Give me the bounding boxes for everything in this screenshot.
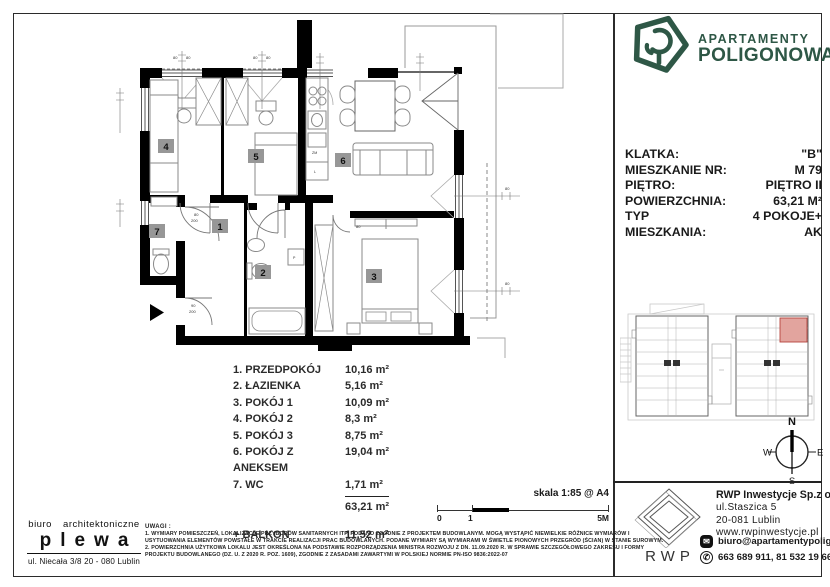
- detail-row: KLATKA:"B": [625, 147, 822, 163]
- scale-caption: skala 1:85 @ A4: [437, 488, 609, 499]
- phone-icon: ✆: [700, 551, 713, 564]
- developer-email: biuro@apartamentypoligonowa.pl: [718, 536, 830, 547]
- compass-rose: N S W E: [760, 414, 824, 486]
- svg-text:L: L: [314, 170, 316, 174]
- svg-text:1: 1: [217, 222, 223, 233]
- room-row: 4. POKÓJ 28,3 m²: [233, 411, 448, 427]
- developer-company: RWP Inwestycje Sp.z o.o.: [716, 489, 824, 502]
- developer-address2: 20-081 Lublin: [716, 515, 824, 528]
- total-area: 63,21 m²: [345, 496, 389, 515]
- room-row: 3. POKÓJ 110,09 m²: [233, 395, 448, 411]
- notes-block: UWAGI : 1. WYMIARY POMIESZCZEŃ, LOKALIZA…: [145, 524, 617, 559]
- svg-text:80: 80: [253, 55, 258, 60]
- developer-info: RWP Inwestycje Sp.z o.o. ul.Staszica 5 2…: [716, 489, 824, 540]
- room-list: 1. PRZEDPOKÓJ10,16 m² 2. ŁAZIENKA5,16 m²…: [233, 362, 448, 543]
- svg-text:P: P: [293, 256, 296, 260]
- brand-line2: POLIGONOWA: [698, 45, 830, 67]
- architect-logo: biuro architektoniczne plewa ul. Niecała…: [27, 519, 141, 566]
- brand-pentagon-icon: [628, 12, 690, 76]
- svg-text:90: 90: [191, 303, 196, 308]
- plan-sheet: 8080 8080 80 200 90 200 80 80 80 ZM L P …: [0, 0, 830, 587]
- scale-tick-5m: 5M: [597, 513, 609, 523]
- room-row: 6. POKÓJ Z ANEKSEM19,04 m²: [233, 444, 448, 477]
- notes-line: 1. WYMIARY POMIESZCZEŃ, LOKALIZACJE PRZY…: [145, 531, 617, 538]
- detail-row: PIĘTRO:PIĘTRO II: [625, 178, 822, 194]
- svg-text:200: 200: [191, 218, 198, 223]
- svg-text:80: 80: [505, 281, 510, 286]
- detail-value: 63,21 M²: [773, 194, 822, 210]
- svg-text:80: 80: [505, 186, 510, 191]
- detail-label: MIESZKANIE NR:: [625, 163, 727, 179]
- email-icon: ✉: [700, 535, 713, 548]
- detail-row: MIESZKANIE NR:M 79: [625, 163, 822, 179]
- building-right: [732, 316, 812, 416]
- svg-text:80: 80: [186, 55, 191, 60]
- detail-row: POWIERZCHNIA:63,21 M²: [625, 194, 822, 210]
- developer-divider: [613, 481, 822, 483]
- developer-phone-row: ✆ 663 689 911, 81 532 19 66: [700, 551, 830, 564]
- svg-text:3: 3: [371, 272, 376, 283]
- detail-label: TYP MIESZKANIA:: [625, 209, 733, 240]
- developer-email-row: ✉ biuro@apartamentypoligonowa.pl: [700, 535, 830, 548]
- scale-tick-0: 0: [437, 513, 442, 523]
- notes-line: PROJEKTU BUDOWLANEGO (DZ. U. Z 2020 R. P…: [145, 552, 617, 559]
- detail-label: KLATKA:: [625, 147, 679, 163]
- svg-text:80: 80: [266, 55, 271, 60]
- compass-n: N: [788, 416, 796, 428]
- svg-text:2: 2: [260, 268, 265, 279]
- room-badge-3: 3: [366, 269, 382, 283]
- svg-text:80: 80: [194, 212, 199, 217]
- room-badge-4: 4: [158, 139, 174, 153]
- notes-title: UWAGI :: [145, 524, 617, 530]
- compass-w: W: [763, 448, 772, 459]
- unit-highlight: [780, 318, 807, 342]
- detail-value: PIĘTRO II: [766, 178, 822, 194]
- rwp-logo-text: RWP: [640, 548, 700, 565]
- scale-ruler: [437, 505, 609, 513]
- balcony-door: [422, 73, 458, 130]
- svg-text:6: 6: [340, 156, 345, 167]
- room-row: 2. ŁAZIENKA5,16 m²: [233, 378, 448, 394]
- furniture: [150, 78, 433, 334]
- notes-line: 2. POWIERZCHNIA UŻYTKOWA LOKALU JEST OKR…: [145, 545, 617, 552]
- developer-address1: ul.Staszica 5: [716, 502, 824, 515]
- room-badge-5: 5: [248, 149, 264, 163]
- floor-plan-drawing: 8080 8080 80 200 90 200 80 80 80 ZM L P …: [50, 13, 620, 368]
- room-row: 5. POKÓJ 38,75 m²: [233, 428, 448, 444]
- building-left: [632, 316, 712, 416]
- room-badge-6: 6: [335, 153, 351, 167]
- svg-text:80: 80: [173, 55, 178, 60]
- architect-name: plewa: [27, 530, 141, 554]
- room-badge-7: 7: [149, 224, 165, 238]
- notes-line: USYTUOWANIA ELEMENTÓW POWSTAŁE W TRAKCIE…: [145, 538, 617, 545]
- scale-bar: skala 1:85 @ A4 0 1 5M: [437, 488, 609, 523]
- room-badge-1: 1: [212, 219, 228, 233]
- svg-text:4: 4: [163, 142, 169, 153]
- detail-value: 4 POKOJE+ AK: [733, 209, 822, 240]
- detail-value: M 79: [794, 163, 822, 179]
- architect-line1: biuro architektoniczne: [27, 519, 141, 530]
- brand-line1: APARTAMENTY: [698, 32, 810, 46]
- room-total-row: 63,21 m²: [233, 496, 448, 515]
- detail-row: TYP MIESZKANIA:4 POKOJE+ AK: [625, 209, 822, 240]
- scale-tick-1: 1: [468, 513, 473, 523]
- developer-phones: 663 689 911, 81 532 19 66: [718, 552, 830, 563]
- detail-label: PIĘTRO:: [625, 178, 675, 194]
- room-row: 1. PRZEDPOKÓJ10,16 m²: [233, 362, 448, 378]
- svg-text:80: 80: [356, 224, 361, 229]
- brand-logo: APARTAMENTY POLIGONOWA: [628, 12, 824, 78]
- room-row: 7. WC1,71 m²: [233, 477, 448, 493]
- svg-text:200: 200: [189, 309, 196, 314]
- detail-label: POWIERZCHNIA:: [625, 194, 726, 210]
- svg-text:5: 5: [253, 152, 259, 163]
- detail-value: "B": [801, 147, 822, 163]
- unit-details: KLATKA:"B" MIESZKANIE NR:M 79 PIĘTRO:PIĘ…: [625, 147, 822, 241]
- svg-text:7: 7: [154, 227, 159, 238]
- svg-text:ZM: ZM: [312, 151, 317, 155]
- compass-e: E: [817, 448, 823, 459]
- balcony-outline: [405, 14, 563, 358]
- architect-address: ul. Niecała 3/8 20 - 080 Lublin: [27, 554, 141, 566]
- room-badge-2: 2: [255, 265, 271, 279]
- entrance-arrow-icon: [150, 304, 164, 321]
